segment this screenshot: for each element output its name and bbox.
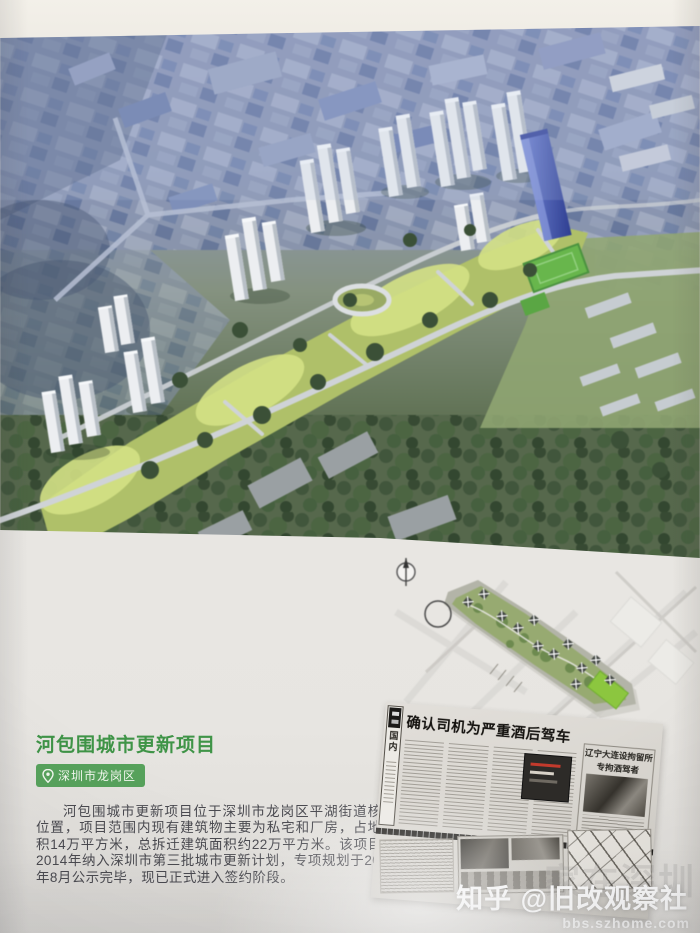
location-pin-icon: [42, 769, 54, 783]
newspaper-section-label: 国内: [385, 730, 401, 753]
location-badge-label: 深圳市龙岗区: [58, 767, 136, 784]
project-title: 河包围城市更新项目: [36, 730, 396, 757]
siteplan-circle-marker: [425, 601, 451, 627]
newspaper-text-column: [443, 741, 489, 830]
compass-icon: [397, 558, 415, 586]
project-description: 河包围城市更新项目位于深圳市龙岗区平湖街道核心位置，项目范围内现有建筑物主要为私…: [36, 804, 396, 887]
project-info-block: 河包围城市更新项目 深圳市龙岗区 河包围城市更新项目位于深圳市龙岗区平湖街道核心…: [36, 730, 396, 886]
newspaper-bottom-text: [379, 838, 454, 893]
newspaper-masthead-logo: [388, 707, 402, 728]
newspaper-text-column: [399, 738, 445, 827]
location-badge: 深圳市龙岗区: [36, 764, 145, 787]
newspaper-sidebox-photo: [583, 774, 648, 817]
aerial-rendering-image: [0, 0, 700, 560]
aerial-rendering-scene: [0, 0, 700, 560]
watermark-text: 知乎 @旧改观察社: [456, 877, 688, 916]
watermark-url: bbs.szhome.com: [562, 915, 690, 931]
photographed-brochure-page: 河包围城市更新项目 深圳市龙岗区 河包围城市更新项目位于深圳市龙岗区平湖街道核心…: [0, 0, 700, 933]
newspaper-inset-box: [521, 753, 572, 803]
newspaper-section-smalltext: [383, 758, 396, 803]
